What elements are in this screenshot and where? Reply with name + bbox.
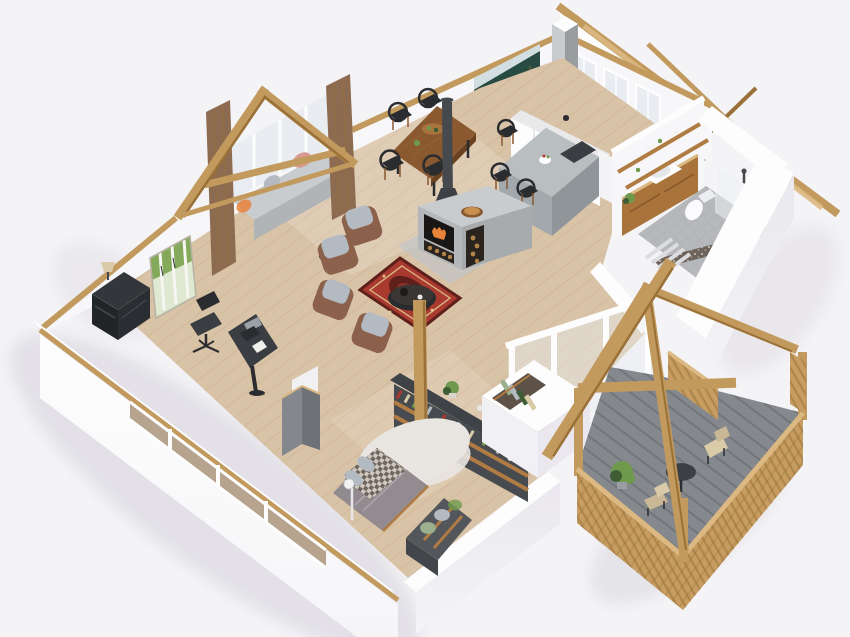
stove-flue xyxy=(447,102,448,202)
green-cushion xyxy=(448,500,462,511)
teapot xyxy=(400,288,408,296)
floorplan-render xyxy=(0,0,850,637)
apple xyxy=(414,140,420,146)
gray-cushion xyxy=(434,509,450,521)
green-cushion xyxy=(420,522,436,534)
kettle xyxy=(563,115,569,121)
bread-bowl xyxy=(461,207,483,218)
apartment-scene xyxy=(0,0,850,637)
cup xyxy=(418,295,423,300)
side-railing xyxy=(790,352,806,414)
fruit-platter xyxy=(421,123,445,136)
